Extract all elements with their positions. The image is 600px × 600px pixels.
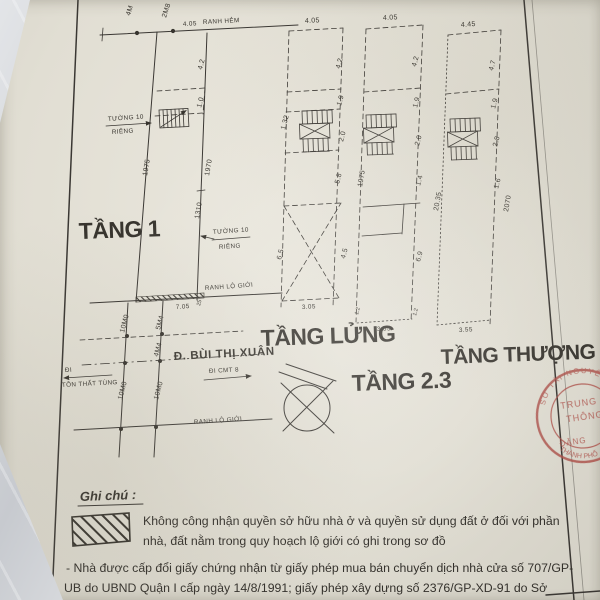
mezzanine-stair-icon bbox=[299, 110, 333, 152]
floor23-stair-icon bbox=[363, 114, 397, 155]
stamp-line1: TRUNG bbox=[560, 396, 598, 411]
topfloor-stair-icon bbox=[447, 118, 481, 160]
street-dir-left: ĐI bbox=[65, 367, 72, 374]
floor23-title: TẦNG 2.3 bbox=[351, 366, 451, 396]
mezzanine-right-dim-0: 4.2 bbox=[335, 57, 345, 69]
floor23-bottom-right-dim: 1.2 bbox=[412, 308, 420, 317]
topfloor-plan: 4.45 4.7 1.9 2.8 1.6 20.35 2070 3.55 bbox=[433, 21, 513, 334]
floor1-title: TẦNG 1 bbox=[78, 214, 161, 244]
red-stamp: SỞ TÀI NGUYÊN TRUNG THÔNG ĐĂNG THÀNH PHỐ bbox=[531, 360, 600, 468]
floorplan-drawing: 4M 2M8 4.05 RANH HẺM 1975 1970 1310 4.2 … bbox=[0, 0, 600, 600]
mezzanine-void-right-dim: 4.5 bbox=[340, 247, 350, 259]
floor1-wall-note-top-line1: TƯỜNG 10 bbox=[108, 111, 145, 122]
street-dim-right-top: 5M4 bbox=[155, 315, 166, 331]
floor1-left-dim: 1975 bbox=[142, 159, 152, 177]
floor1-hatch-dim-small: 25 bbox=[196, 299, 203, 306]
mezzanine-right-dim-2: 2.0 bbox=[338, 130, 348, 142]
photo-background: 4M 2M8 4.05 RANH HẺM 1975 1970 1310 4.2 … bbox=[0, 0, 600, 600]
legend-heading: Ghi chú : bbox=[80, 487, 137, 504]
notes-paragraph: - Nhà được cấp đổi giấy chứng nhận từ gi… bbox=[64, 561, 573, 595]
floor1-alley-dim-b: 2M8 bbox=[161, 3, 172, 19]
floor1-right-dim-lower: 1310 bbox=[194, 202, 204, 220]
floor23-right-dim-1: 1.9 bbox=[412, 96, 422, 108]
floor1-wall-note-top-line2: RIÊNG bbox=[112, 125, 135, 136]
mezzanine-right-dim-1: 1.9 bbox=[336, 94, 346, 106]
legend-hatch-swatch bbox=[72, 513, 130, 546]
topfloor-right-dim-2: 2.8 bbox=[492, 135, 502, 147]
mezzanine-title: TẦNG LỬNG bbox=[260, 318, 396, 351]
floor1-stair-icon bbox=[159, 108, 189, 127]
floor1-wall-note-right-line2: RIÊNG bbox=[219, 240, 242, 251]
floor1-hatch-dim: 7.05 bbox=[176, 303, 190, 311]
floor1-alley-dim-a: 4M bbox=[125, 5, 135, 17]
floor23-top-dim: 4.05 bbox=[383, 14, 398, 22]
street-dim-right-mid: 4M4 bbox=[153, 342, 164, 358]
crossed-circle-symbol bbox=[279, 364, 336, 433]
mezzanine-plan: 4.05 4.2 1.9 2.0 5.8 1.32 6.5 4.5 3.05 bbox=[276, 17, 350, 311]
boundary-hatch-strip bbox=[136, 293, 204, 302]
mezzanine-bottom-dim: 3.05 bbox=[302, 303, 316, 311]
mezzanine-right-dim-3: 5.8 bbox=[334, 172, 344, 184]
floor23-right-dim-0: 4.2 bbox=[411, 55, 421, 67]
floor23-right-dim-2: 2.0 bbox=[414, 134, 424, 146]
street-name: Đ. BÙI THỊ XUÂN bbox=[173, 345, 275, 363]
floor1-alley-label: RANH HẺM bbox=[203, 15, 240, 26]
topfloor-bottom-dim: 3.55 bbox=[459, 326, 473, 334]
floor1-wall-note-right-line1: TƯỜNG 10 bbox=[213, 224, 250, 235]
notes-line2: UB do UBND Quận I cấp ngày 14/8/1991; gi… bbox=[64, 581, 547, 595]
mezzanine-left-dim-upper: 1.32 bbox=[280, 114, 291, 130]
floor23-plan: 4.05 4.2 1.9 2.0 1.4 1975 6.9 1.2 1.2 3.… bbox=[354, 14, 425, 333]
street-dir-right: ĐI CMT 8 bbox=[209, 366, 239, 375]
document-paper: 4M 2M8 4.05 RANH HẺM 1975 1970 1310 4.2 … bbox=[0, 0, 600, 600]
floor23-room-right-dim: 6.9 bbox=[415, 250, 425, 262]
street-block: RANH LỘ GIỚI 10M0 5M4 4M4 10M0 10M0 Đ. B… bbox=[62, 301, 275, 457]
floor23-right-dim-3: 1.4 bbox=[415, 174, 425, 186]
street-boundary-label: RANH LỘ GIỚI bbox=[194, 414, 243, 426]
floor23-bottom-left-dim: 1.2 bbox=[354, 307, 362, 316]
legend-line2: nhà, đất nằm trong quy hoạch lộ giới có … bbox=[143, 533, 446, 548]
floor1-right-dim-upper: 1970 bbox=[204, 159, 214, 177]
floor1-plan: 4M 2M8 4.05 RANH HẺM 1975 1970 1310 4.2 … bbox=[78, 3, 298, 311]
topfloor-right-dim-0: 4.7 bbox=[488, 59, 498, 71]
topfloor-top-dim: 4.45 bbox=[461, 21, 476, 29]
floor1-alley-dim: 4.05 bbox=[183, 20, 197, 28]
topfloor-right-dim-3: 1.6 bbox=[493, 177, 503, 189]
legend-line1: Không công nhận quyền sở hữu nhà ở và qu… bbox=[143, 514, 560, 528]
notes-line1: - Nhà được cấp đổi giấy chứng nhận từ gi… bbox=[66, 561, 573, 575]
stamp-line2: THÔNG bbox=[566, 409, 600, 424]
street-dim-right-bottom: 10M0 bbox=[153, 381, 165, 401]
mezzanine-void-left-dim: 6.5 bbox=[276, 248, 286, 260]
floor23-left-total-dim: 1975 bbox=[357, 170, 367, 188]
topfloor-title: TẦNG THƯỢNG bbox=[440, 341, 596, 369]
floor1-boundary-label: RANH LỘ GIỚI bbox=[205, 280, 254, 292]
street-dim-left-bottom: 10M0 bbox=[117, 381, 129, 401]
topfloor-right-total-dim: 2070 bbox=[503, 195, 513, 213]
street-dim-left-top: 10M0 bbox=[119, 314, 131, 334]
legend: Ghi chú : Không công nhận quyền sở hữu n… bbox=[72, 487, 560, 548]
mezzanine-top-dim: 4.05 bbox=[305, 17, 320, 25]
